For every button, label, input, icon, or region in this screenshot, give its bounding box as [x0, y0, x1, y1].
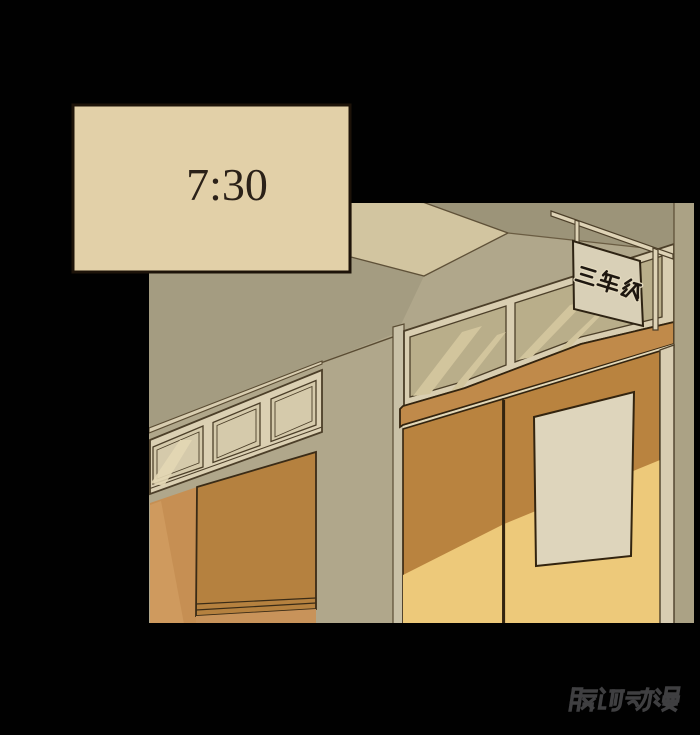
- svg-text:7:30: 7:30: [186, 159, 268, 210]
